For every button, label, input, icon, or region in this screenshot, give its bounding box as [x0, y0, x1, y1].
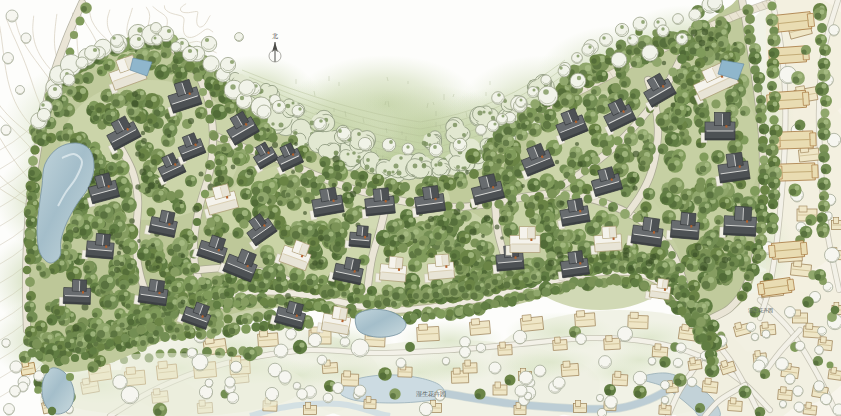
svg-text:湿生花卉园: 湿生花卉园: [748, 307, 773, 314]
svg-text:北: 北: [272, 32, 278, 40]
svg-text:湿生花卉园: 湿生花卉园: [416, 390, 446, 398]
